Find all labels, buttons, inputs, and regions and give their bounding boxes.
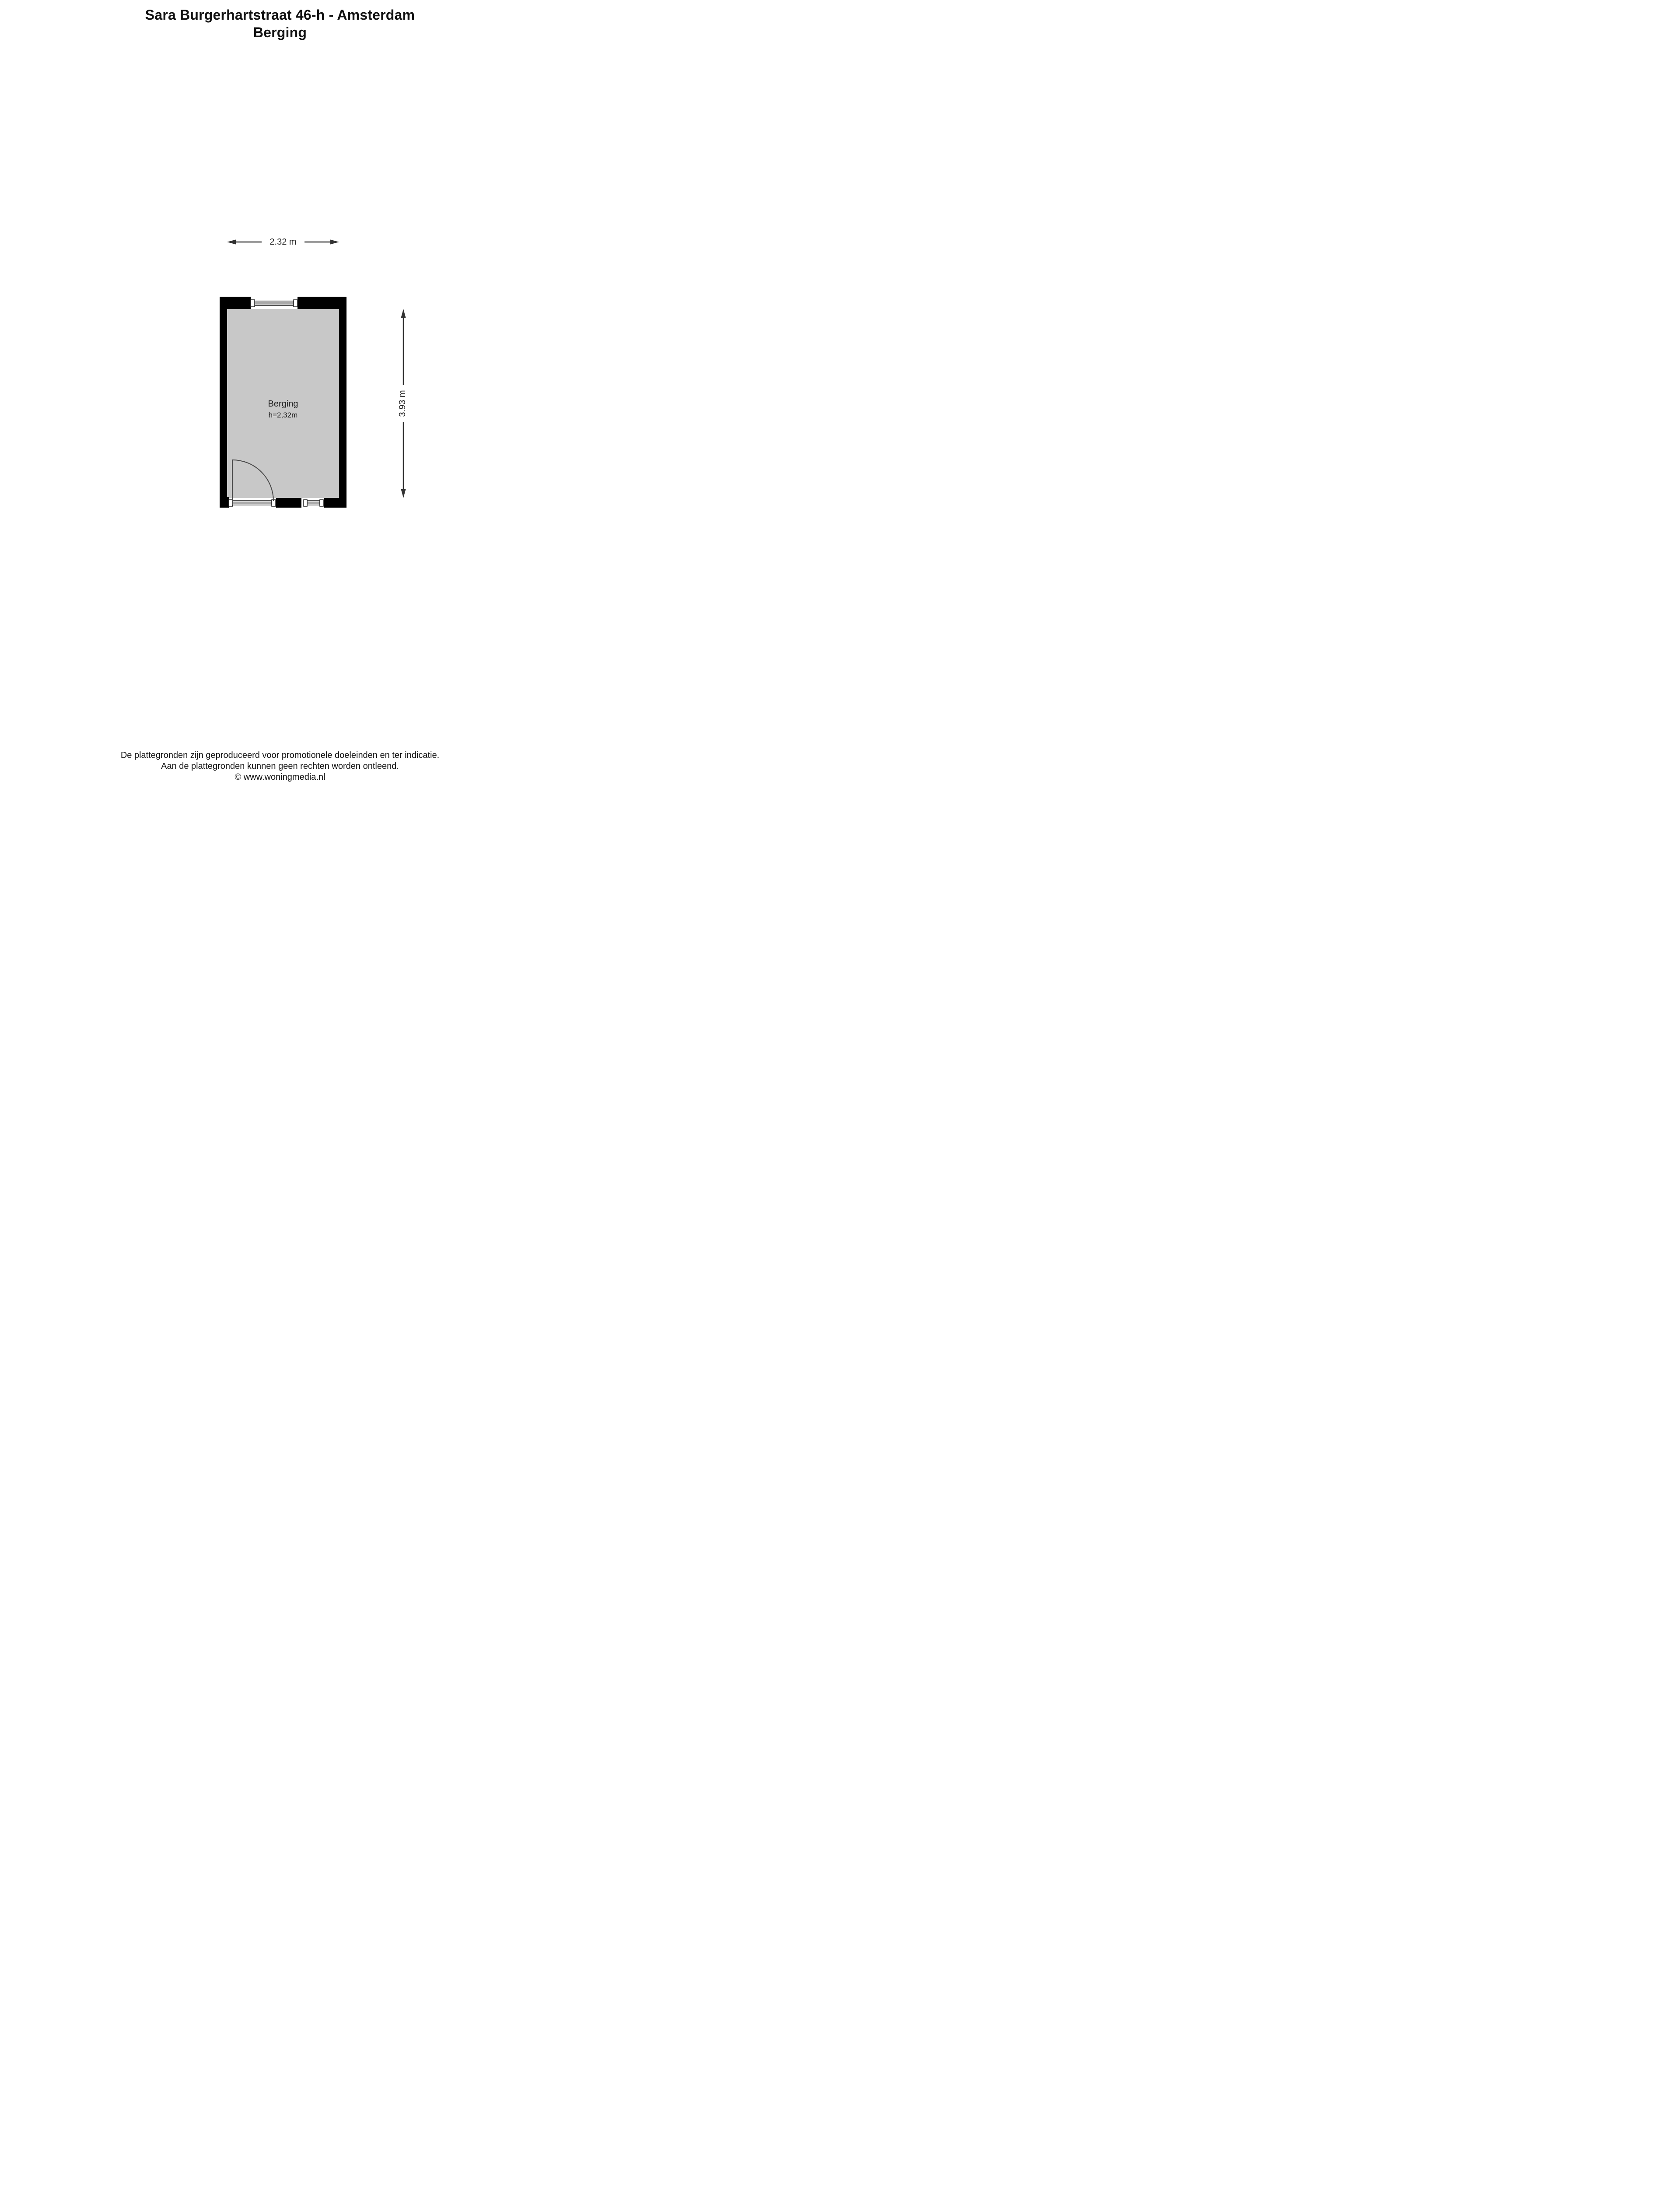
- height-dimension-label: 3.93 m: [397, 377, 408, 430]
- wall-segment-bottom-middle: [276, 498, 301, 508]
- floorplan-graphic: [0, 0, 560, 792]
- wall-segment-bottom-right-corner: [324, 498, 346, 508]
- arrow-left-head: [227, 240, 236, 245]
- arrow-right-head: [330, 240, 339, 245]
- window-end-cap: [294, 300, 297, 307]
- window-end-cap: [304, 500, 307, 506]
- room-name: Berging: [217, 398, 349, 410]
- window-icon-top: [251, 300, 297, 307]
- wall-segment-bottom-left-corner: [220, 497, 229, 508]
- footer-disclaimer-line2: Aan de plattegronden kunnen geen rechten…: [0, 761, 560, 772]
- footer-copyright: © www.woningmedia.nl: [0, 772, 560, 783]
- floorplan-page: Sara Burgerhartstraat 46-h - Amsterdam B…: [0, 0, 560, 792]
- width-dimension-label: 2.32 m: [257, 236, 309, 248]
- arrow-bottom-head: [401, 489, 406, 498]
- room-label: Berging h=2,32m: [217, 398, 349, 420]
- window-icon-bottom-right: [304, 500, 323, 506]
- window-end-cap: [320, 500, 323, 506]
- footer-disclaimer-line1: De plattegronden zijn geproduceerd voor …: [0, 750, 560, 761]
- room-ceiling-height: h=2,32m: [217, 410, 349, 420]
- window-end-cap: [251, 300, 255, 307]
- window-icon-bottom-left: [229, 500, 276, 506]
- footer: De plattegronden zijn geproduceerd voor …: [0, 750, 560, 783]
- arrow-top-head: [401, 309, 406, 318]
